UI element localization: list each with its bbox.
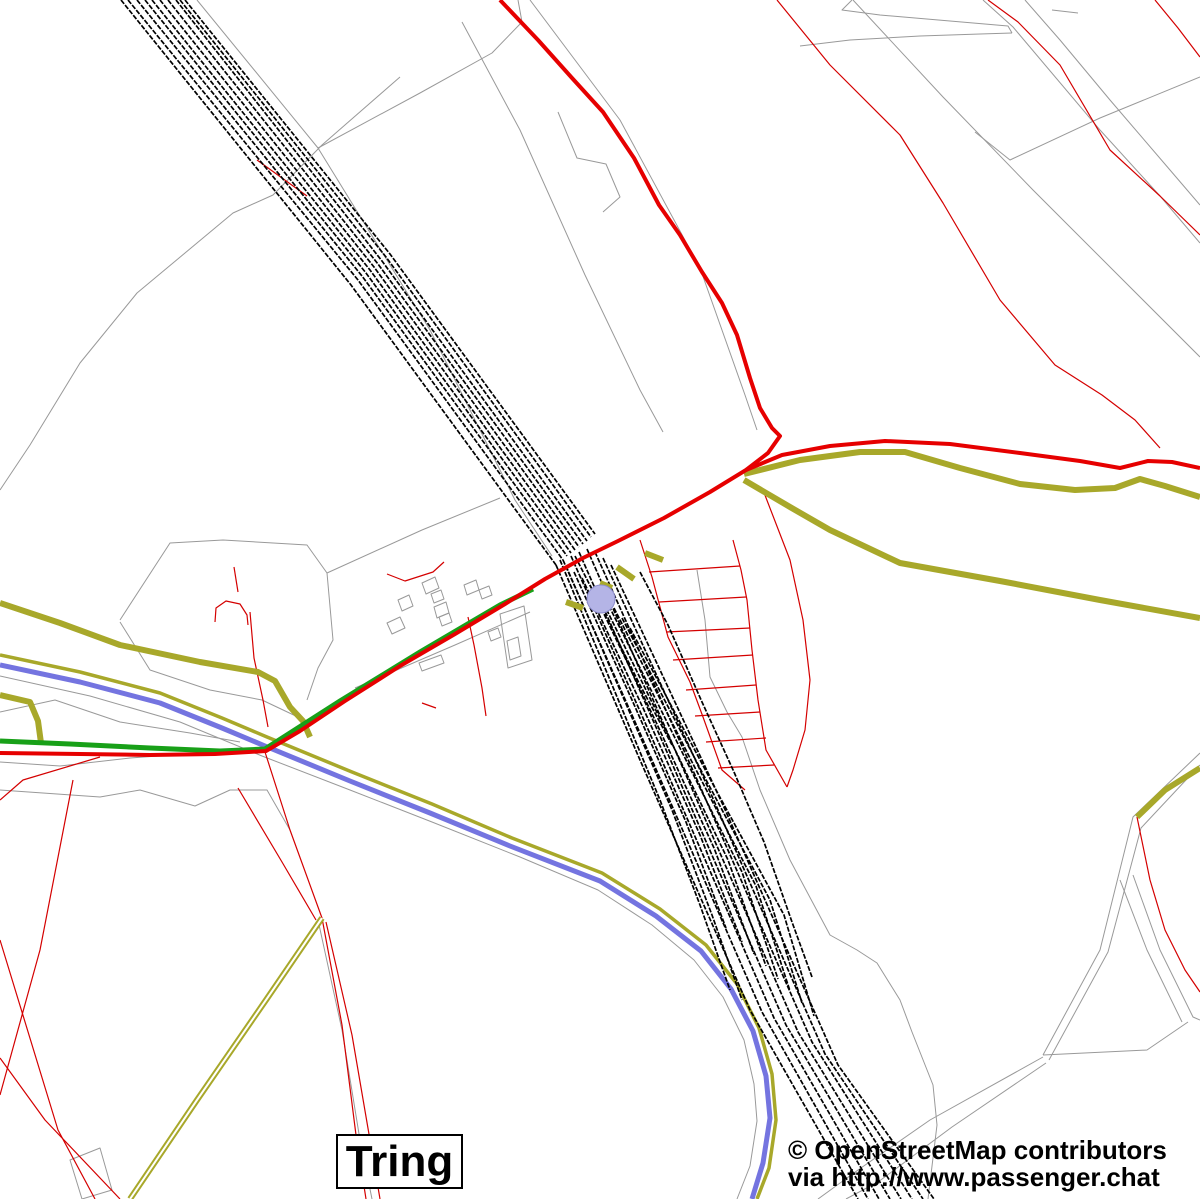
tracks-path: [0, 695, 41, 743]
towpath-path: [0, 655, 776, 1199]
layer-major-roads: [0, 0, 1200, 755]
railway-path: [137, 0, 567, 556]
boundaries-path: [462, 22, 663, 432]
layer-railway: [121, 0, 934, 1199]
buildings-path: [419, 655, 444, 671]
minor-roads-path: [733, 540, 787, 787]
track-stubs-path: [617, 567, 634, 579]
minor-roads-path: [718, 765, 774, 768]
boundaries-path: [307, 573, 333, 700]
boundaries-path: [842, 0, 1012, 33]
map-svg: [0, 0, 1200, 1199]
buildings-path: [500, 606, 532, 668]
railway-path: [574, 572, 726, 928]
buildings-path: [479, 586, 492, 599]
cycleway-path: [0, 589, 533, 751]
railway-path: [611, 565, 934, 1199]
minor-roads-path: [468, 617, 486, 716]
minor-roads-path: [666, 628, 750, 632]
attribution-line-1: © OpenStreetMap contributors: [788, 1137, 1167, 1164]
railway-path: [128, 0, 563, 560]
layer-towpath: [0, 655, 776, 1199]
boundaries-path: [1049, 765, 1200, 1060]
map-canvas[interactable]: [0, 0, 1200, 1199]
track-stubs-path: [645, 553, 663, 560]
minor-roads-path: [0, 780, 73, 1095]
minor-roads-path: [706, 738, 766, 742]
railway-path: [185, 0, 595, 534]
minor-roads-path: [1137, 817, 1200, 992]
minor-roads-path: [763, 490, 810, 787]
boundaries-path: [975, 77, 1200, 160]
minor-roads-path: [777, 0, 1160, 448]
buildings-path: [398, 595, 413, 611]
minor-roads-path: [1155, 0, 1200, 57]
boundaries-path: [0, 790, 290, 830]
railway-path: [560, 560, 730, 990]
boundaries-path: [1133, 875, 1200, 1020]
boundaries-path: [1052, 10, 1078, 13]
layer-buildings: [70, 577, 532, 1199]
place-label-box: Tring: [336, 1134, 463, 1189]
boundaries-path: [120, 622, 300, 718]
railway-path: [160, 0, 579, 547]
railway-path: [603, 558, 923, 1199]
attribution-line-2: via http://www.passenger.chat: [788, 1164, 1167, 1191]
minor-roads-path: [422, 703, 436, 708]
minor-roads-path: [0, 940, 95, 1199]
railway-path: [180, 0, 591, 537]
railway-path: [121, 0, 556, 565]
boundaries-path: [1120, 880, 1182, 1022]
buildings-path: [464, 580, 479, 595]
boundaries-path: [1043, 1022, 1188, 1055]
railway-path: [168, 0, 583, 544]
minor-roads-path: [0, 1058, 120, 1199]
boundaries-path: [1025, 0, 1200, 205]
boundaries-path: [0, 77, 400, 490]
station-marker[interactable]: [587, 585, 615, 613]
buildings-path: [507, 637, 521, 660]
layer-track-core: [130, 918, 322, 1199]
place-label-text: Tring: [346, 1137, 454, 1187]
boundaries-path: [318, 0, 522, 148]
tracks-path: [1137, 768, 1200, 817]
tracks-path: [744, 480, 1200, 618]
railway-path: [590, 585, 754, 954]
layer-cycleway: [0, 589, 533, 751]
railway-path: [152, 0, 575, 550]
railway-path: [575, 556, 672, 745]
map-attribution: © OpenStreetMap contributors via http://…: [788, 1137, 1167, 1191]
boundaries-path: [530, 0, 757, 430]
track-stubs-path: [566, 602, 583, 608]
minor-roads-path: [215, 601, 248, 625]
minor-roads-path: [649, 566, 740, 572]
boundaries-path: [120, 498, 500, 620]
track-core-path: [130, 918, 322, 1199]
tracks-path: [0, 603, 310, 737]
minor-roads-path: [673, 655, 753, 660]
tracks-path: [744, 452, 1200, 497]
railway-path: [566, 566, 742, 1000]
railway-path: [630, 628, 814, 1016]
map-viewport: Tring © OpenStreetMap contributors via h…: [0, 0, 1200, 1199]
buildings-path: [431, 590, 444, 603]
boundaries-path: [800, 33, 1012, 46]
railway-path: [176, 0, 587, 541]
buildings-path: [387, 617, 405, 634]
boundaries-path: [853, 0, 1200, 357]
railway-path: [563, 560, 868, 1199]
minor-roads-path: [234, 567, 238, 592]
railway-path: [145, 0, 571, 553]
